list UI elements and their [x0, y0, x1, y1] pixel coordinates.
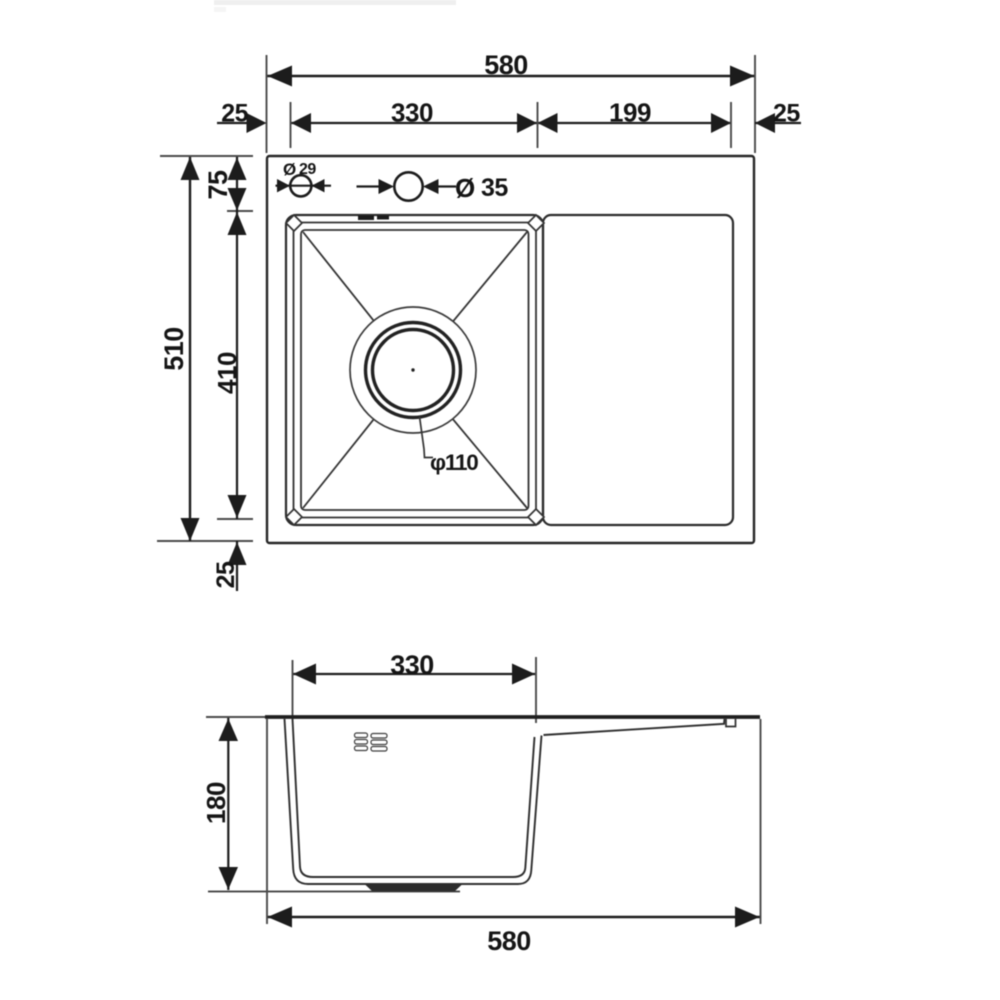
svg-text:29: 29	[299, 161, 316, 178]
svg-text:25: 25	[221, 100, 248, 128]
svg-text:25: 25	[773, 100, 800, 128]
svg-text:φ110: φ110	[430, 450, 478, 475]
svg-text:35: 35	[481, 174, 508, 202]
svg-text:25: 25	[212, 561, 240, 588]
svg-text:410: 410	[212, 352, 242, 394]
svg-text:180: 180	[201, 782, 231, 824]
svg-text:580: 580	[487, 926, 531, 956]
svg-text:330: 330	[391, 98, 433, 128]
svg-text:75: 75	[203, 170, 233, 200]
svg-text:580: 580	[484, 50, 528, 80]
svg-text:199: 199	[609, 98, 651, 128]
svg-text:Ø: Ø	[455, 173, 475, 203]
svg-text:Ø: Ø	[283, 160, 296, 179]
svg-text:510: 510	[159, 327, 189, 371]
svg-text:330: 330	[390, 650, 434, 680]
